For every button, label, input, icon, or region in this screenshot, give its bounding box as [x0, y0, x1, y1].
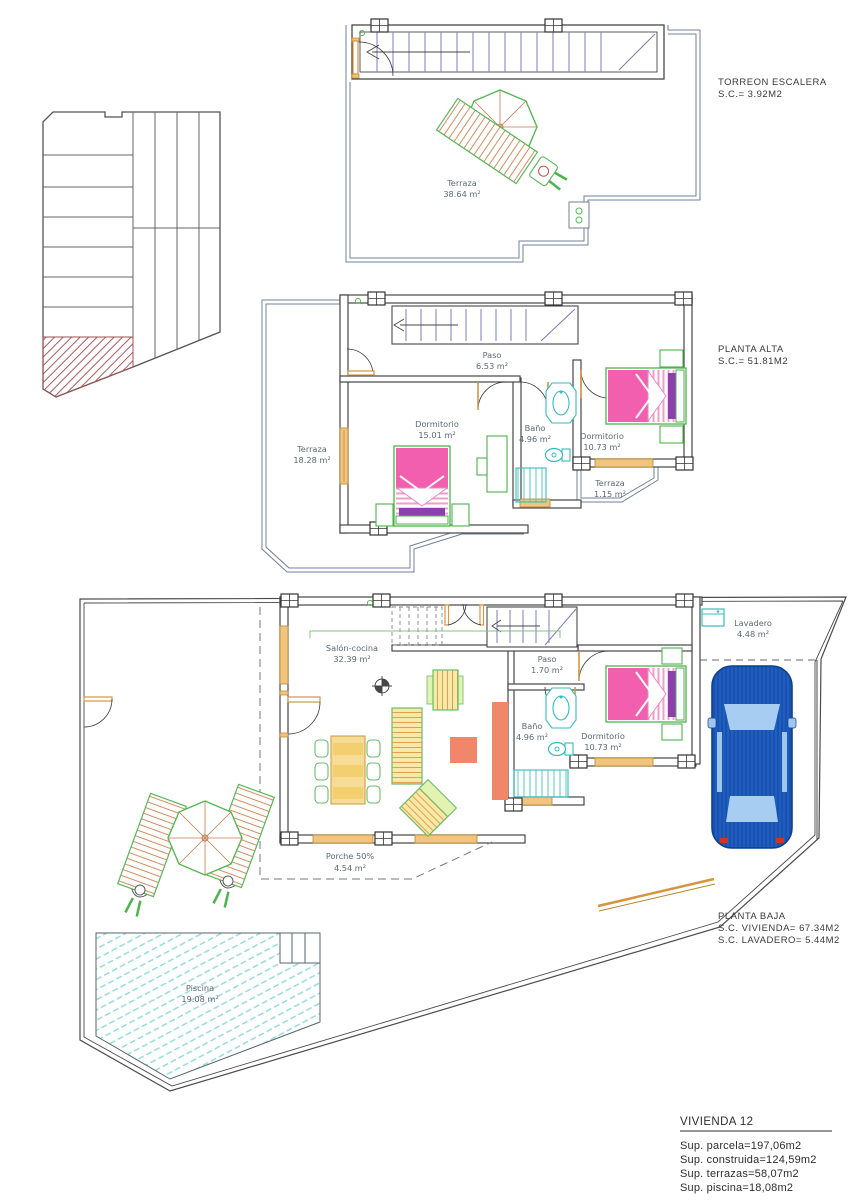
- room-area-piscina: 19.08 m²: [181, 994, 218, 1004]
- summary-line-parcela: Sup. parcela=197,06m2: [680, 1140, 801, 1152]
- sink-icon: [546, 383, 576, 423]
- room-label-baja-paso: Paso: [538, 654, 557, 664]
- column: [678, 755, 695, 768]
- room-area-baja-bano: 4.96 m²: [516, 732, 548, 742]
- bed: [606, 368, 686, 424]
- room-label-alta-paso: Paso: [483, 350, 502, 360]
- planta-alta-plan: Terraza 18.28 m² Paso 6.53 m² Dormitorio…: [262, 292, 788, 572]
- alta-area: S.C.= 51.81M2: [718, 356, 788, 367]
- drain-symbol: [372, 676, 392, 696]
- taillight: [720, 838, 728, 843]
- column: [676, 457, 693, 470]
- room-area-alta-terraza2: 1.15 m²: [594, 489, 626, 499]
- room-area-baja-salon: 32.39 m²: [333, 654, 370, 664]
- room-label-baja-porche: Porche 50%: [326, 851, 375, 861]
- section-hatched-area: [43, 337, 133, 397]
- summary-line-terrazas: Sup. terrazas=58,07m2: [680, 1168, 799, 1180]
- column: [373, 594, 390, 607]
- coffee-table: [450, 737, 477, 763]
- room-area-alta-dorm2: 10.73 m²: [583, 442, 620, 452]
- stair-section-drawing: [43, 112, 220, 397]
- kitchen-counter: [492, 702, 508, 800]
- floorplan-drawing: Terraza 38.64 m² TORREON ESCALERA S.C.= …: [0, 0, 848, 1200]
- column: [545, 292, 562, 305]
- washing-machine-icon: [702, 609, 724, 626]
- shower-icon: [514, 770, 568, 797]
- car: [708, 666, 796, 848]
- room-label-baja-salon: Salón-cocina: [326, 643, 378, 653]
- room-area-baja-paso: 1.70 m²: [531, 665, 563, 675]
- wardrobe: [662, 648, 682, 664]
- shower-icon: [516, 468, 546, 502]
- baja-area2: S.C. LAVADERO= 5.44M2: [718, 935, 840, 946]
- bed: [606, 666, 686, 722]
- armchair-rotated: [400, 780, 457, 837]
- column: [371, 19, 388, 32]
- deck-chair-icon: [529, 156, 571, 195]
- column: [281, 594, 298, 607]
- armchair: [427, 670, 463, 710]
- floorplan-sheet: Terraza 38.64 m² TORREON ESCALERA S.C.= …: [0, 0, 848, 1200]
- car-mirror: [788, 718, 796, 728]
- room-label-alta-dorm1: Dormitorio: [415, 419, 459, 429]
- room-label-alta-dorm2: Dormitorio: [580, 431, 624, 441]
- room-area-alta-dorm1: 15.01 m²: [418, 430, 455, 440]
- room-label-alta-terraza2: Terraza: [594, 478, 625, 488]
- room-label-alta-bano: Baño: [525, 423, 546, 433]
- column: [676, 594, 693, 607]
- room-area-alta-bano: 4.96 m²: [519, 434, 551, 444]
- room-label-baja-lavadero: Lavadero: [734, 618, 772, 628]
- room-area-baja-lavadero: 4.48 m²: [737, 629, 769, 639]
- sofa: [392, 708, 422, 784]
- column: [570, 755, 587, 768]
- sink-icon: [546, 688, 576, 728]
- room-label-piscina: Piscina: [186, 983, 214, 993]
- room-area-baja-porche: 4.54 m²: [334, 863, 366, 873]
- summary-line-construida: Sup. construida=124,59m2: [680, 1154, 817, 1166]
- room-area-alta-paso: 6.53 m²: [476, 361, 508, 371]
- alta-title: PLANTA ALTA: [718, 344, 784, 355]
- toilet-icon: [546, 449, 571, 462]
- torreon-title: TORREON ESCALERA: [718, 77, 827, 88]
- wardrobe: [662, 724, 682, 740]
- planta-baja-plan: Piscina 19.08 m²: [80, 594, 846, 1091]
- dining-set: [315, 736, 380, 804]
- column: [281, 832, 298, 845]
- summary-line-piscina: Sup. piscina=18,08m2: [680, 1182, 793, 1194]
- room-area-alta-terraza: 18.28 m²: [293, 455, 330, 465]
- baja-area1: S.C. VIVIENDA= 67.34M2: [718, 923, 840, 934]
- room-area-baja-dorm: 10.73 m²: [584, 742, 621, 752]
- column: [545, 594, 562, 607]
- window: [595, 459, 653, 467]
- room-label-torreon-terraza: Terraza: [446, 178, 477, 188]
- bed: [394, 446, 450, 526]
- room-area-torreon-terraza: 38.64 m²: [443, 189, 480, 199]
- column: [375, 832, 392, 845]
- ramp-line: [598, 879, 715, 911]
- room-label-baja-bano: Baño: [522, 721, 543, 731]
- summary-block: VIVIENDA 12 Sup. parcela=197,06m2 Sup. c…: [680, 1116, 832, 1194]
- torreon-area: S.C.= 3.92M2: [718, 89, 782, 100]
- summary-title: VIVIENDA 12: [680, 1116, 753, 1128]
- column: [573, 457, 590, 470]
- pool-steps: [280, 933, 320, 963]
- toilet-icon: [549, 743, 574, 756]
- room-label-alta-terraza: Terraza: [296, 444, 327, 454]
- column: [368, 292, 385, 305]
- taillight: [776, 838, 784, 843]
- column: [545, 19, 562, 32]
- pool: Piscina 19.08 m²: [96, 933, 320, 1079]
- baja-title: PLANTA BAJA: [718, 911, 786, 922]
- car-mirror: [708, 718, 716, 728]
- umbrella-icon: [168, 801, 242, 875]
- column: [675, 292, 692, 305]
- alta-staircase: [392, 306, 578, 344]
- baja-staircase: [392, 607, 577, 647]
- room-label-baja-dorm: Dormitorio: [581, 731, 625, 741]
- torreon-staircase: [352, 25, 664, 79]
- torreon-plan: Terraza 38.64 m² TORREON ESCALERA S.C.= …: [346, 19, 827, 262]
